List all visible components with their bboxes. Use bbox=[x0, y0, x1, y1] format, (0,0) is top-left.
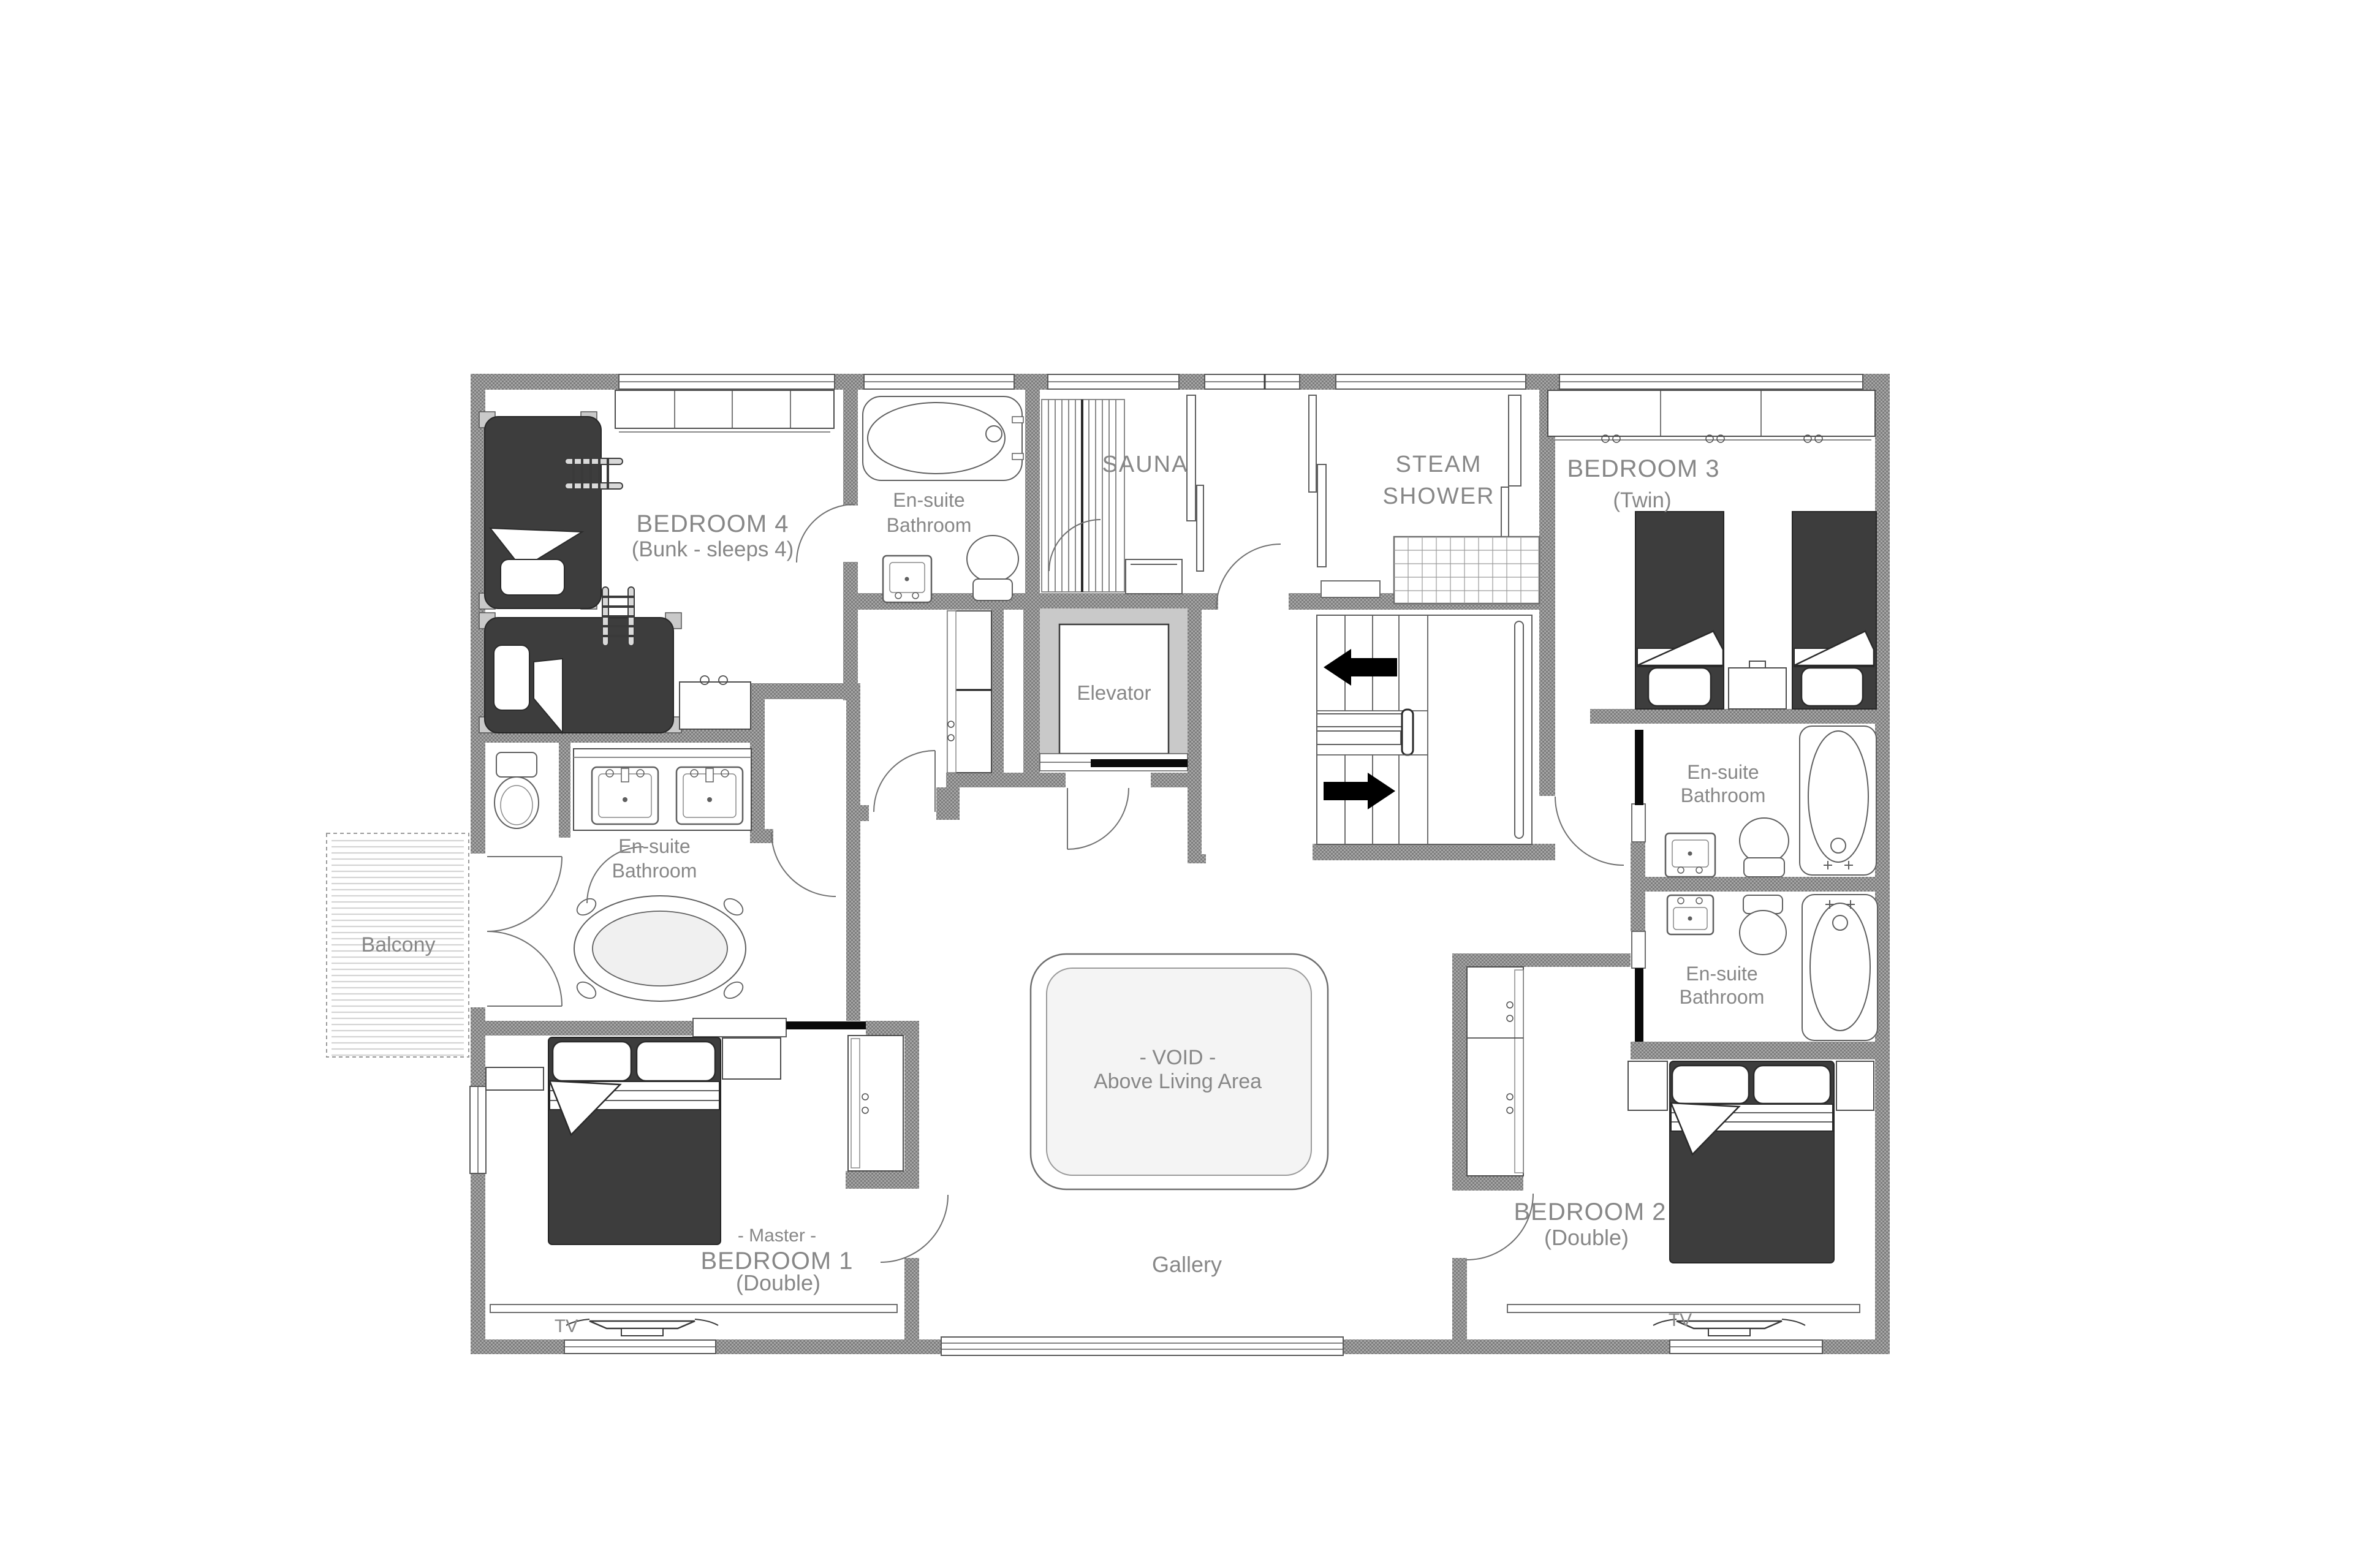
svg-text:Bathroom: Bathroom bbox=[612, 860, 697, 882]
svg-text:SHOWER: SHOWER bbox=[1383, 483, 1495, 509]
svg-text:(Double): (Double) bbox=[736, 1270, 820, 1295]
svg-text:TV: TV bbox=[1669, 1310, 1692, 1330]
svg-text:- Master -: - Master - bbox=[738, 1225, 816, 1246]
svg-text:SAUNA: SAUNA bbox=[1102, 452, 1189, 477]
svg-text:Elevator: Elevator bbox=[1077, 681, 1151, 704]
svg-text:(Twin): (Twin) bbox=[1613, 488, 1671, 512]
svg-text:- VOID -: - VOID - bbox=[1140, 1046, 1216, 1069]
svg-text:Bathroom: Bathroom bbox=[1681, 784, 1766, 806]
svg-text:En-suite: En-suite bbox=[893, 489, 964, 511]
svg-text:TV: TV bbox=[555, 1316, 578, 1336]
svg-text:(Bunk - sleeps 4): (Bunk - sleeps 4) bbox=[632, 537, 794, 561]
svg-text:STEAM: STEAM bbox=[1396, 452, 1482, 477]
svg-text:BEDROOM 2: BEDROOM 2 bbox=[1514, 1199, 1666, 1225]
svg-text:En-suite: En-suite bbox=[618, 835, 690, 857]
svg-text:Bathroom: Bathroom bbox=[1680, 986, 1765, 1008]
svg-text:Balcony: Balcony bbox=[362, 933, 436, 956]
svg-text:(Double): (Double) bbox=[1544, 1225, 1629, 1250]
svg-text:BEDROOM 4: BEDROOM 4 bbox=[636, 510, 789, 537]
svg-text:Above Living Area: Above Living Area bbox=[1094, 1070, 1262, 1093]
svg-text:Bathroom: Bathroom bbox=[887, 514, 972, 536]
svg-text:Gallery: Gallery bbox=[1152, 1252, 1222, 1277]
svg-text:En-suite: En-suite bbox=[1686, 963, 1757, 985]
svg-text:BEDROOM 3: BEDROOM 3 bbox=[1567, 455, 1719, 482]
svg-text:En-suite: En-suite bbox=[1687, 761, 1759, 783]
